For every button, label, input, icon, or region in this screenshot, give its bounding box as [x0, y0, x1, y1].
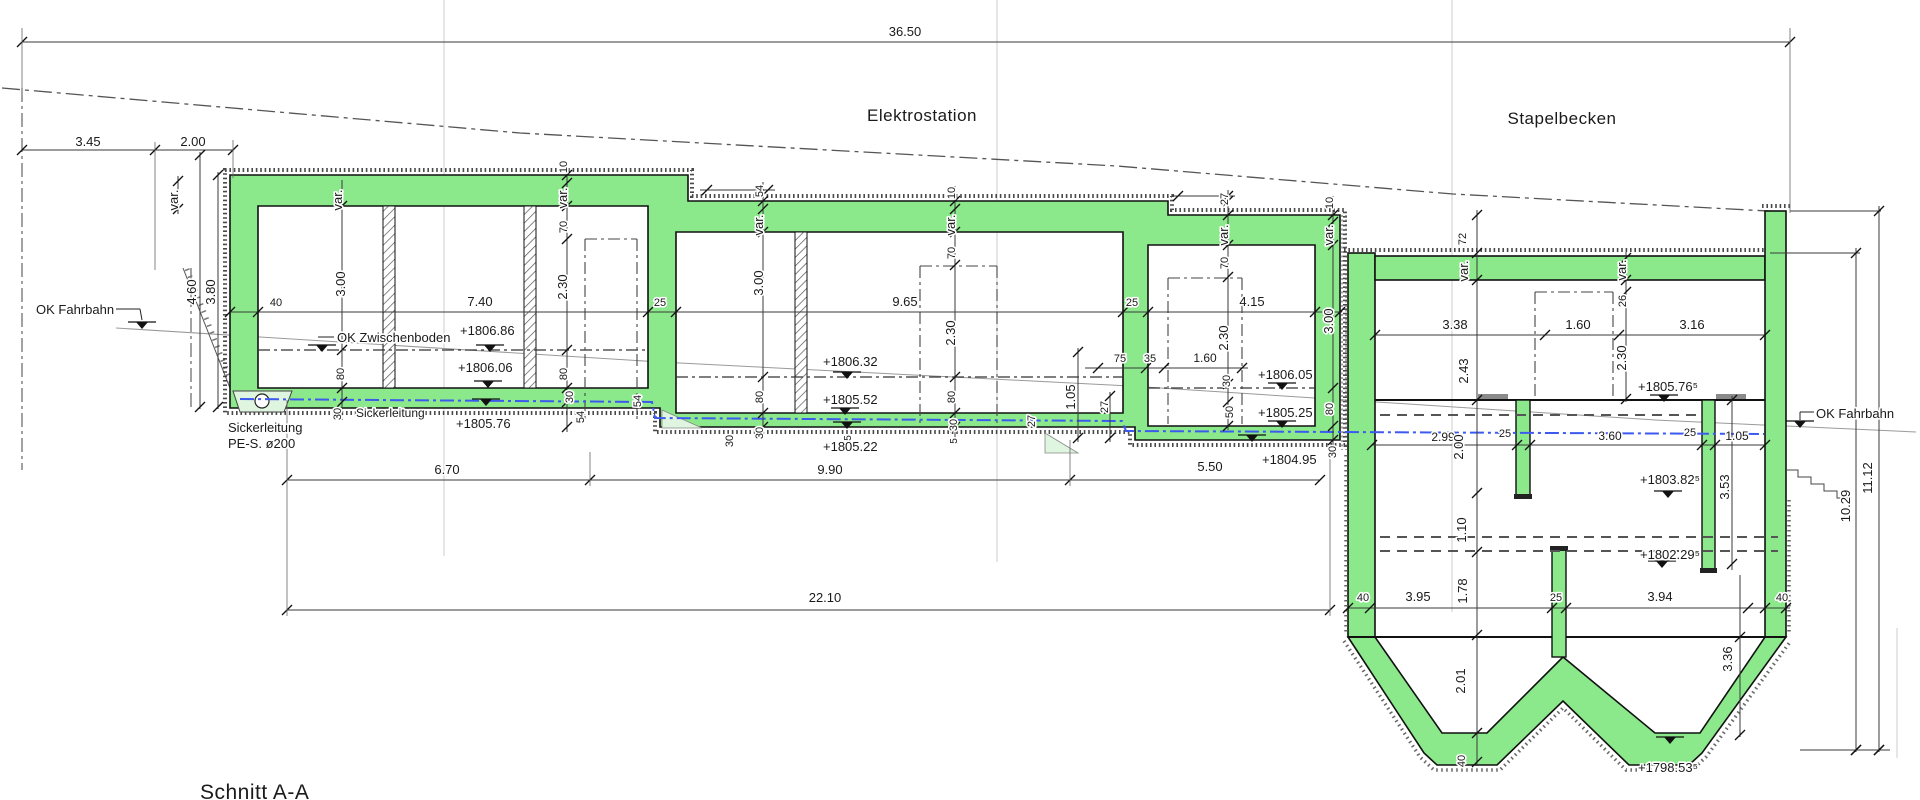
- dim-label-rotated: 26: [1617, 295, 1629, 307]
- dim-label-rotated: 2.43: [1456, 358, 1471, 383]
- dim-label-rotated: 30: [724, 435, 736, 447]
- dim-label-rotated: var.: [555, 188, 570, 209]
- dim-label-rotated: 2.30: [1614, 345, 1629, 370]
- dim-label: 75: [1114, 353, 1126, 365]
- level-label: +1804.95: [1262, 452, 1317, 467]
- dim-label-rotated: 3.53: [1717, 474, 1732, 499]
- area-title-elektrostation: Elektrostation: [867, 106, 977, 125]
- dim-label-rotated: 1.10: [1454, 517, 1469, 542]
- dim-label-rotated: var.: [166, 190, 181, 211]
- dim-label: 1.60: [1193, 351, 1217, 365]
- dim-label-rotated: 30: [332, 408, 344, 420]
- dim-label-rotated: 80: [754, 391, 766, 403]
- dim-label: 4.15: [1239, 294, 1264, 309]
- dim-label-rotated: 10: [1324, 197, 1336, 209]
- dim-label-rotated: 30: [564, 391, 576, 403]
- dim-label-rotated: 2.30: [1216, 325, 1231, 350]
- level-label: +1805.76: [456, 416, 511, 431]
- dim-label: 35: [1144, 353, 1156, 365]
- dim-label: 36.50: [889, 24, 922, 39]
- dim-label: 5.50: [1197, 459, 1222, 474]
- level-label: +1806.05: [1258, 367, 1313, 382]
- dim-label: 3.38: [1442, 317, 1467, 332]
- dim-label-rotated: 4.60: [184, 279, 199, 304]
- dim-label-rotated: var.: [1216, 225, 1231, 246]
- dim-label: PE-S. ø200: [228, 436, 295, 451]
- dim-label-rotated: 2.00: [1451, 434, 1466, 459]
- level-label: +1798.53⁵: [1638, 760, 1698, 775]
- stapelbecken-roof-slab: [1375, 256, 1765, 280]
- level-label: +1803.82⁵: [1640, 472, 1700, 487]
- dim-label-rotated: 3.00: [333, 271, 348, 296]
- dim-label-rotated: 3.00: [1321, 308, 1336, 333]
- dim-label-rotated: var.: [1614, 260, 1629, 281]
- dim-label: 2.00: [180, 134, 205, 149]
- dim-label: 25: [1550, 592, 1562, 604]
- dim-label-rotated: 70: [946, 247, 958, 259]
- dim-label-rotated: 27: [1219, 193, 1231, 205]
- dim-label-rotated: 30: [948, 419, 960, 431]
- dim-label-rotated: 30: [754, 427, 766, 439]
- dim-label: OK Fahrbahn: [36, 302, 114, 317]
- dim-label: 22.10: [809, 590, 842, 605]
- level-label: +1805.25: [1258, 405, 1313, 420]
- dim-label: Sickerleitung: [356, 406, 425, 420]
- dim-label-rotated: 54: [575, 411, 587, 423]
- dim-label-rotated: 10: [946, 187, 958, 199]
- dim-label-rotated: 3.80: [203, 279, 218, 304]
- dim-label: Sickerleitung: [228, 420, 302, 435]
- dim-label: 25: [1684, 427, 1696, 439]
- dim-label-rotated: 1.05: [1063, 384, 1078, 409]
- dim-label-rotated: 11.12: [1860, 462, 1875, 494]
- stapelbecken-right-wall: [1765, 211, 1786, 637]
- section-title: Schnitt A-A: [200, 781, 309, 800]
- dim-label-rotated: 10: [558, 161, 570, 173]
- dim-label: 9.90: [817, 462, 842, 477]
- dim-label-rotated: 80: [558, 368, 570, 380]
- dim-label: 40: [1357, 592, 1369, 604]
- dim-label-rotated: 5: [949, 438, 960, 444]
- dim-label-rotated: 3.36: [1720, 646, 1735, 671]
- area-title-stapelbecken: Stapelbecken: [1507, 109, 1616, 128]
- level-label: +1805.52: [823, 392, 878, 407]
- dim-label: 25: [654, 297, 666, 309]
- dim-label-rotated: 1.78: [1455, 578, 1470, 603]
- level-label: +1805.22: [823, 439, 878, 454]
- level-label: +1802.29⁵: [1640, 547, 1700, 562]
- drain-pipe-icon: [255, 394, 269, 408]
- dim-label-rotated: 27: [1026, 415, 1038, 427]
- inner-wall-right: [1702, 400, 1715, 570]
- dim-label: 40: [1776, 592, 1788, 604]
- dim-label: 25: [1499, 428, 1511, 440]
- dim-label-rotated: 80: [1324, 403, 1336, 415]
- dim-label: 1.05: [1725, 429, 1749, 443]
- dim-label: 6.70: [434, 462, 459, 477]
- dim-label-rotated: 3.00: [751, 270, 766, 295]
- dim-label: 7.40: [467, 294, 492, 309]
- dim-label-rotated: 40: [1456, 755, 1468, 767]
- dim-label-rotated: 50: [1224, 406, 1236, 418]
- dim-label-rotated: 70: [1219, 257, 1231, 269]
- dim-label: 3.95: [1405, 589, 1430, 604]
- dim-label-rotated: 80: [335, 368, 347, 380]
- section-drawing: 36.503.452.00407.40259.65254.1575351.603…: [0, 0, 1920, 800]
- dim-label: 3.60: [1598, 429, 1622, 443]
- dim-label: 1.60: [1565, 317, 1590, 332]
- dim-label-rotated: 80: [946, 391, 958, 403]
- level-label: +1806.32: [823, 354, 878, 369]
- dim-label-rotated: var.: [1321, 225, 1336, 246]
- dim-label-rotated: 2.30: [943, 320, 958, 345]
- stapelbecken-left-wall: [1348, 253, 1375, 637]
- dim-label-rotated: 70: [558, 221, 570, 233]
- dim-label: 3.94: [1647, 589, 1672, 604]
- dim-label-rotated: var.: [330, 190, 345, 211]
- dim-label: 9.65: [892, 294, 917, 309]
- dim-label-rotated: 30: [1327, 446, 1339, 458]
- dim-label-rotated: 30: [1221, 375, 1233, 387]
- dim-label: 25: [1126, 297, 1138, 309]
- dim-label: OK Fahrbahn: [1816, 406, 1894, 421]
- dim-label: OK Zwischenboden: [337, 330, 450, 345]
- dim-label: 3.45: [75, 134, 100, 149]
- dim-label-rotated: 54: [754, 185, 766, 197]
- dim-label: 3.16: [1679, 317, 1704, 332]
- dim-label-rotated: var.: [1456, 261, 1471, 282]
- dim-label-rotated: 2.30: [555, 274, 570, 299]
- level-label: +1806.86: [460, 323, 515, 338]
- level-label: +1806.06: [458, 360, 513, 375]
- level-label: +1805.76⁵: [1638, 379, 1698, 394]
- dim-label-rotated: 10.29: [1838, 490, 1853, 523]
- dim-label: 40: [270, 297, 282, 309]
- dim-label-rotated: 54: [632, 395, 644, 407]
- dim-label-rotated: 2.01: [1453, 668, 1468, 693]
- dim-label-rotated: var.: [751, 215, 766, 236]
- dim-label-rotated: 27: [1099, 401, 1111, 413]
- dim-label-rotated: var.: [943, 215, 958, 236]
- dim-label-rotated: 72: [1457, 233, 1469, 245]
